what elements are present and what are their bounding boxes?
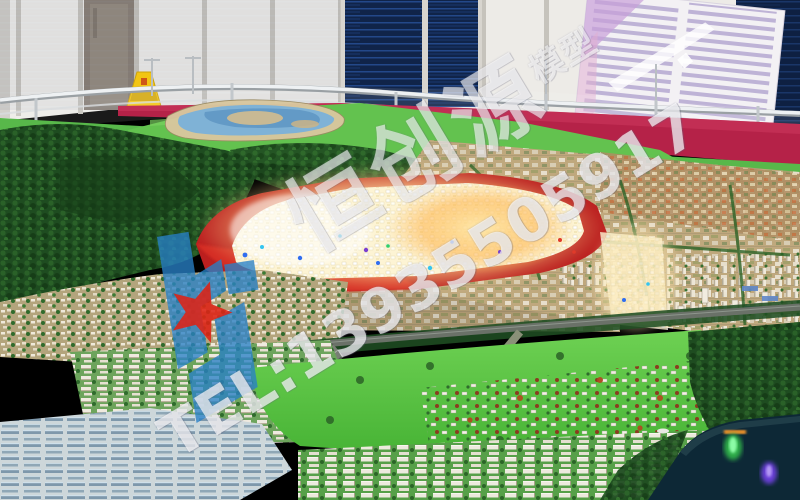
model-scene xyxy=(0,0,800,500)
showroom-photo: 恒创源模型 TEL:13935505917 xyxy=(0,0,800,500)
